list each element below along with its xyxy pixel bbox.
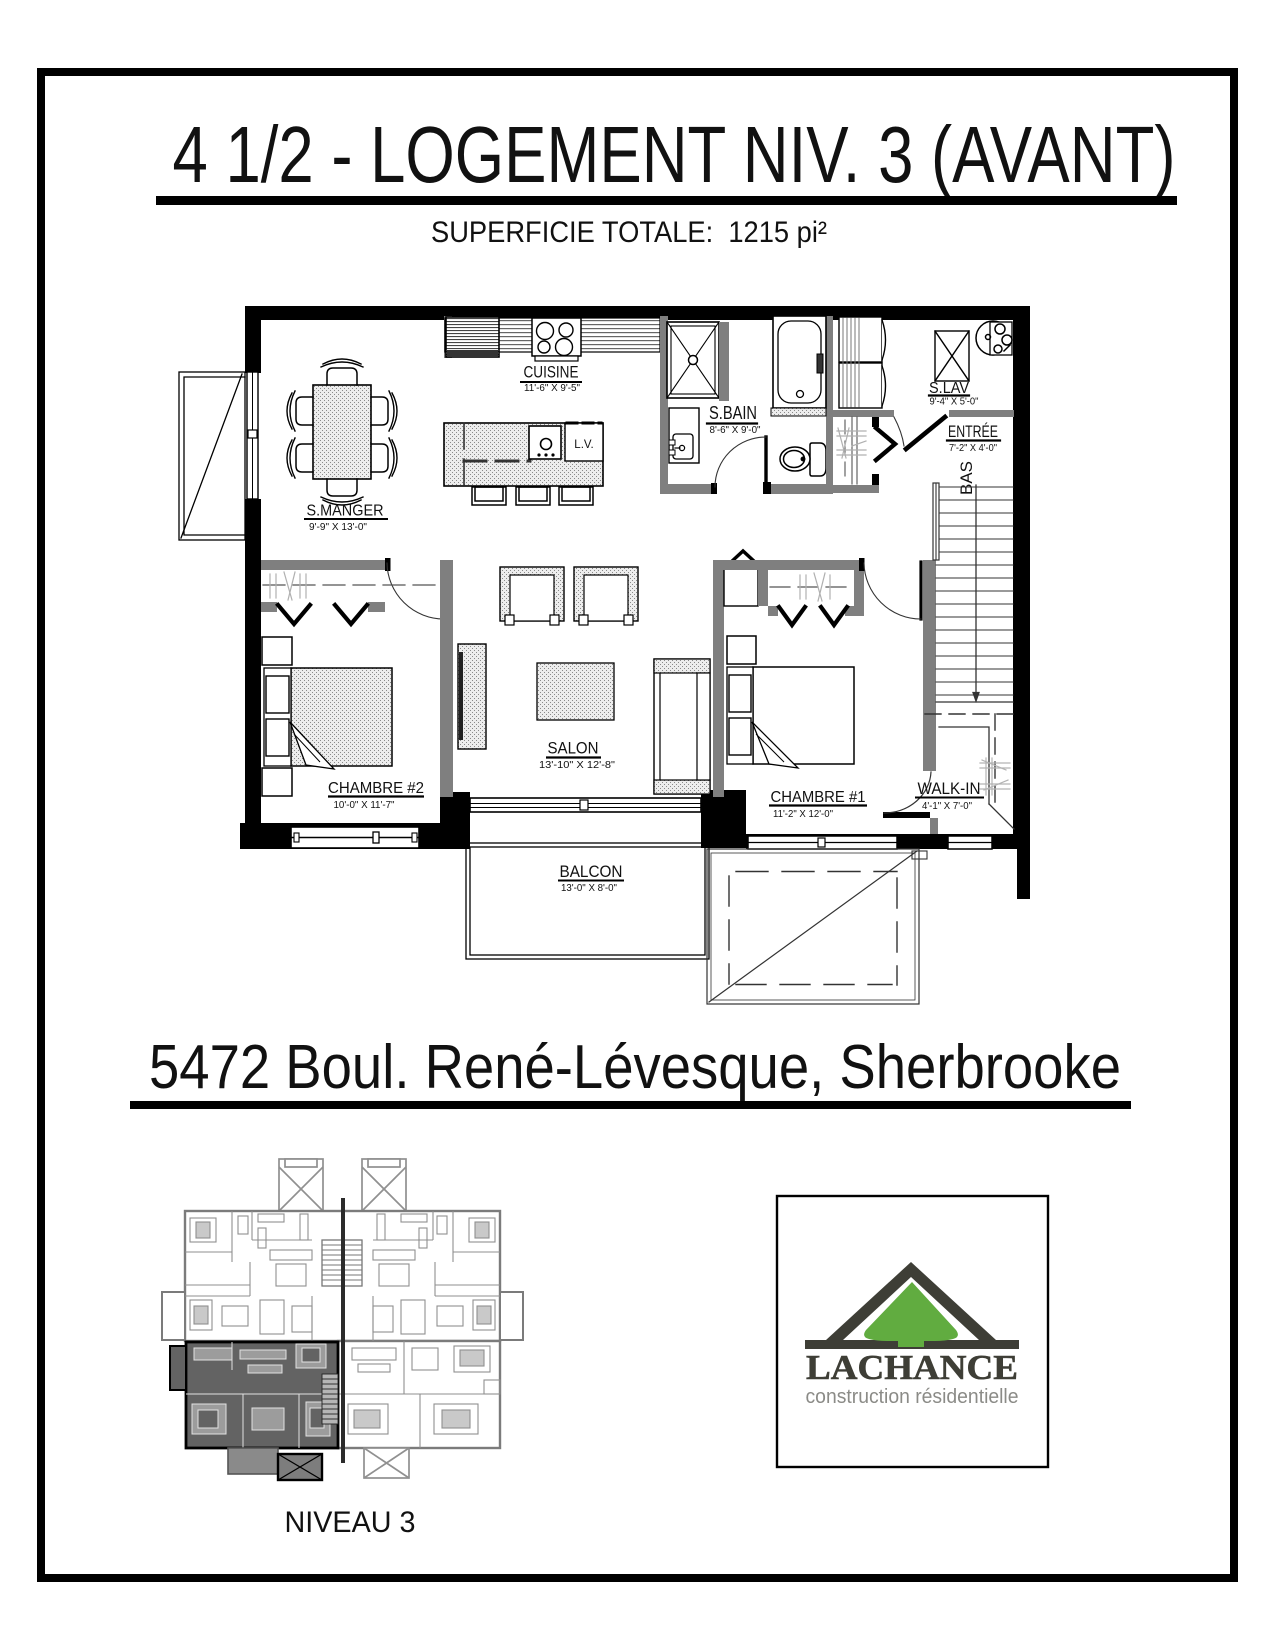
svg-text:construction résidentielle: construction résidentielle	[806, 1386, 1019, 1408]
svg-text:CUISINE: CUISINE	[524, 363, 579, 382]
svg-text:WALK-IN: WALK-IN	[918, 780, 981, 798]
svg-text:13'-0" X 8'-0": 13'-0" X 8'-0"	[561, 882, 617, 894]
svg-text:L.V.: L.V.	[574, 439, 593, 451]
svg-text:4 1/2 - LOGEMENT NIV. 3 (AVANT: 4 1/2 - LOGEMENT NIV. 3 (AVANT)	[173, 110, 1176, 199]
svg-text:9'-9" X 13'-0": 9'-9" X 13'-0"	[309, 521, 367, 533]
svg-text:ENTRÉE: ENTRÉE	[948, 422, 998, 441]
svg-text:4'-1" X 7'-0": 4'-1" X 7'-0"	[922, 800, 972, 812]
svg-text:9'-4" X 5'-0": 9'-4" X 5'-0"	[930, 396, 979, 408]
svg-text:BAS: BAS	[957, 461, 976, 495]
svg-text:10'-0" X 11'-7": 10'-0" X 11'-7"	[334, 799, 395, 811]
svg-text:11'-2" X 12'-0": 11'-2" X 12'-0"	[773, 808, 833, 820]
svg-text:S.MANGER: S.MANGER	[307, 503, 384, 520]
svg-text:5472 Boul. René-Lévesque, Sher: 5472 Boul. René-Lévesque, Sherbrooke	[149, 1033, 1121, 1102]
svg-text:CHAMBRE #2: CHAMBRE #2	[328, 780, 424, 797]
svg-text:BALCON: BALCON	[560, 863, 623, 881]
svg-text:13'-10" X 12'-8": 13'-10" X 12'-8"	[539, 759, 615, 771]
svg-text:11'-6" X 9'-5": 11'-6" X 9'-5"	[524, 382, 580, 394]
svg-text:CHAMBRE #1: CHAMBRE #1	[771, 789, 866, 806]
svg-text:8'-6" X 9'-0": 8'-6" X 9'-0"	[710, 424, 761, 436]
svg-text:SUPERFICIE TOTALE: 1215 pi²: SUPERFICIE TOTALE: 1215 pi²	[431, 216, 827, 249]
svg-text:7'-2" X 4'-0": 7'-2" X 4'-0"	[949, 442, 997, 454]
svg-text:NIVEAU 3: NIVEAU 3	[285, 1506, 416, 1539]
svg-text:SALON: SALON	[548, 739, 599, 758]
svg-text:S.BAIN: S.BAIN	[709, 403, 757, 423]
svg-text:LACHANCE: LACHANCE	[806, 1348, 1018, 1387]
